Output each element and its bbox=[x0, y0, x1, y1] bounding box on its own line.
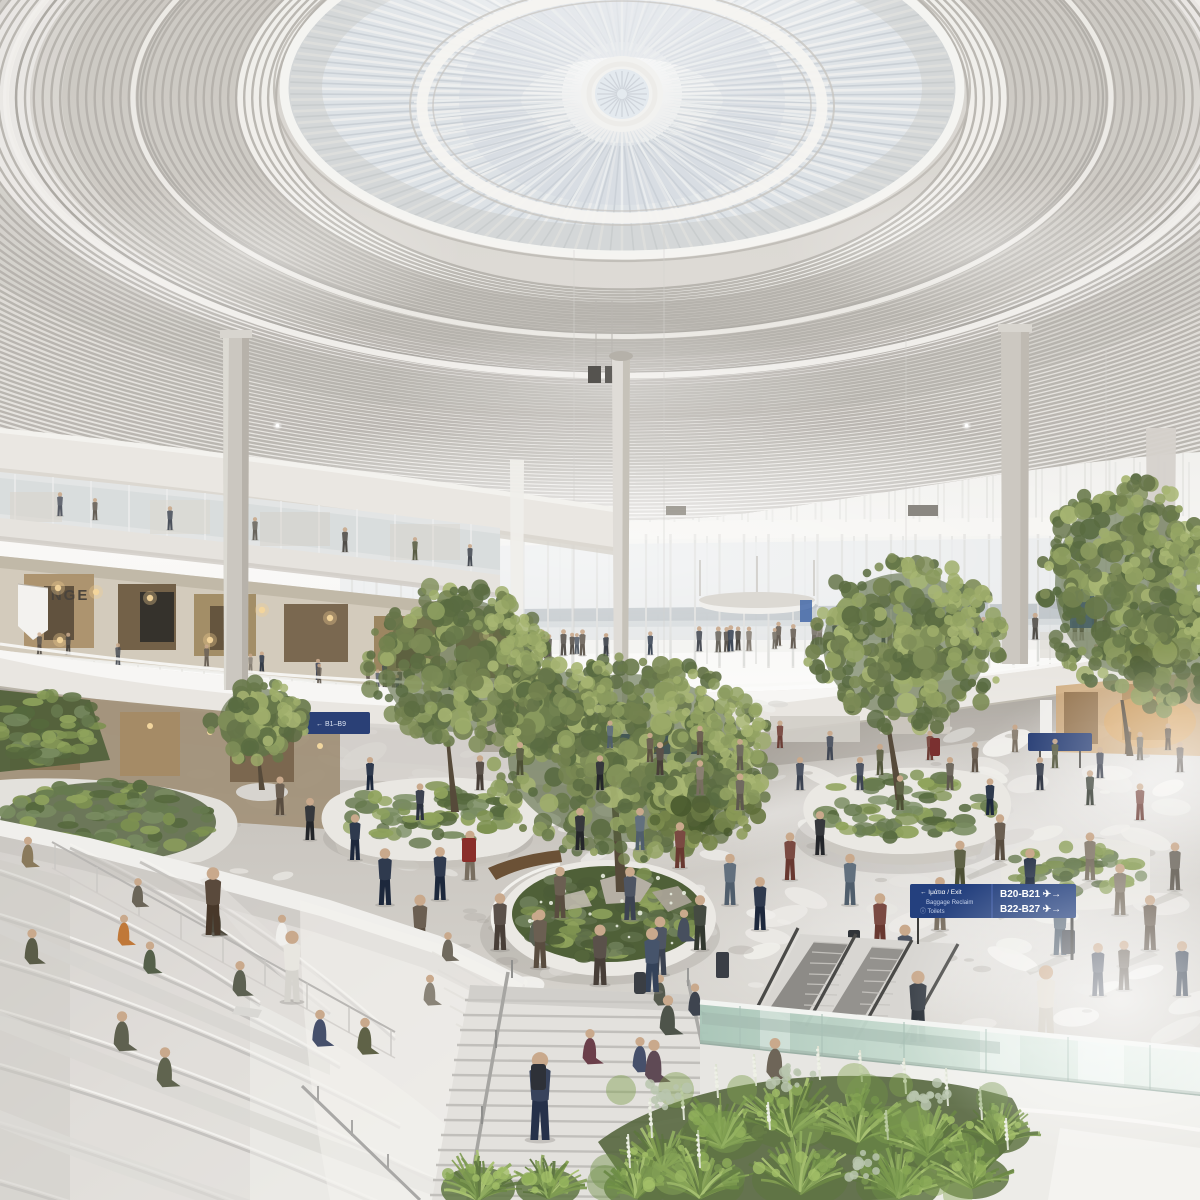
svg-text:← B1–B9: ← B1–B9 bbox=[316, 721, 346, 728]
